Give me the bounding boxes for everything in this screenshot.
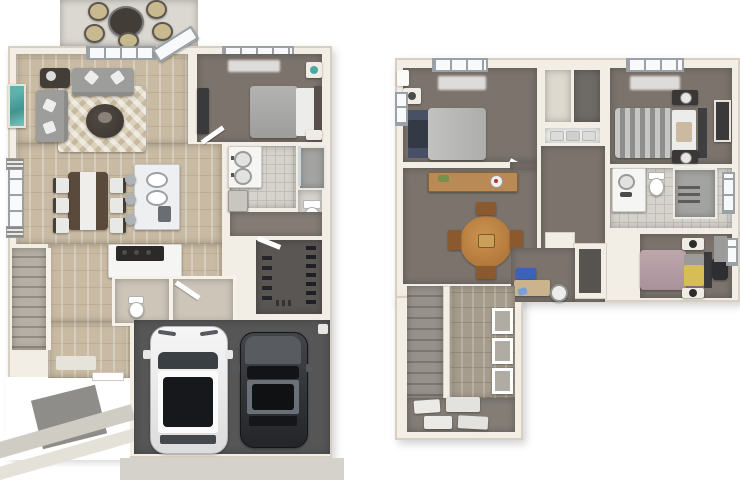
- lamp: [408, 92, 416, 100]
- suv-mirror: [143, 350, 151, 359]
- bed-duvet: [250, 86, 298, 138]
- lamp: [689, 240, 697, 248]
- suv-windshield: [158, 352, 218, 369]
- window-light: [228, 60, 280, 72]
- shoe-shelf-left: [262, 256, 272, 306]
- towel-stack: [582, 131, 596, 141]
- second-floor-plan: [370, 0, 740, 480]
- suv-mirror: [225, 350, 233, 359]
- sedan-sunroof: [252, 384, 294, 410]
- headboard: [704, 252, 712, 288]
- sedan-windshield: [247, 366, 299, 379]
- left-wall-window: [395, 92, 408, 126]
- blue-bin: [516, 268, 536, 279]
- towel-stack: [566, 131, 580, 141]
- patio-chair: [88, 2, 109, 21]
- table-chair: [510, 230, 523, 250]
- master-window: [626, 58, 684, 72]
- master-accent-pillow: [676, 122, 692, 142]
- burner: [122, 250, 127, 255]
- bedroom3-window: [726, 238, 738, 266]
- hall-closet-dark: [574, 70, 600, 122]
- island-sink: [146, 172, 168, 188]
- bowl-fruit: [494, 179, 498, 183]
- closet-items: [276, 300, 294, 306]
- dresser: [197, 88, 209, 134]
- stair-railing-wall: [443, 286, 450, 400]
- sofa-top: [72, 68, 134, 96]
- island-stool: [125, 214, 136, 225]
- mauve-bed: [640, 250, 686, 290]
- dining-chair: [110, 178, 126, 193]
- teal-lamp: [310, 66, 318, 74]
- island-stool: [125, 174, 136, 185]
- table-chair: [448, 230, 461, 250]
- floor-mat: [458, 415, 489, 430]
- floor-mat: [414, 399, 441, 414]
- shower-glass: [298, 146, 301, 186]
- island-stool: [125, 194, 136, 205]
- front-door: [92, 372, 124, 381]
- driveway: [120, 458, 344, 480]
- corner-table-decor: [46, 71, 56, 81]
- shoe-shelf-right: [306, 246, 316, 308]
- faucet: [231, 173, 234, 177]
- floor-mat: [424, 416, 452, 429]
- dining-chair: [53, 198, 69, 213]
- patio-chair: [84, 24, 105, 43]
- sofa-left: [36, 90, 68, 142]
- lamp: [680, 152, 692, 164]
- gallery-frame: [492, 338, 513, 364]
- toilet-bowl: [649, 178, 664, 196]
- headboard: [698, 108, 707, 158]
- bath-cabinet: [228, 190, 248, 212]
- living-window: [86, 46, 156, 60]
- bed-pillows: [296, 88, 316, 136]
- bath-hall: [230, 212, 322, 236]
- vanity-sink: [234, 168, 252, 185]
- suv-rear-window: [160, 435, 216, 444]
- island-cooktop: [158, 206, 171, 222]
- garage-opener-box: [318, 324, 328, 334]
- window-light: [630, 76, 680, 90]
- table-runner: [80, 172, 96, 230]
- patio-chair: [146, 0, 167, 19]
- sedan-rear-window: [249, 416, 297, 426]
- wall-art-frame: [714, 100, 731, 142]
- staircase: [407, 286, 443, 398]
- lamp: [680, 92, 692, 104]
- side-window: [8, 168, 24, 230]
- dining-chair: [110, 198, 126, 213]
- hall-closet: [545, 70, 571, 122]
- first-floor-plan: [0, 0, 370, 480]
- shower: [298, 146, 326, 190]
- powder-toilet: [129, 302, 144, 318]
- burner: [146, 250, 151, 255]
- gallery-frame: [492, 308, 513, 334]
- dining-chair: [110, 218, 126, 233]
- island-sink: [146, 190, 168, 206]
- storage-closet-shelves: [579, 249, 601, 293]
- wall-shelf: [397, 70, 409, 86]
- lamp: [689, 289, 697, 297]
- faucet: [231, 156, 234, 160]
- dining-chair: [53, 218, 69, 233]
- table-chair: [476, 266, 496, 279]
- table-centerpiece: [478, 234, 495, 248]
- shower-towel-rack: [678, 186, 700, 206]
- sedan-mirror: [233, 364, 240, 372]
- console-decor-green: [438, 175, 449, 182]
- bedroom2-window: [432, 58, 488, 72]
- striped-bed: [615, 108, 673, 158]
- towel-stack: [550, 131, 564, 141]
- staircase: [12, 248, 51, 350]
- gray-bed: [428, 108, 486, 160]
- wall-art-teal: [8, 84, 26, 128]
- window-valance: [6, 158, 24, 170]
- desk-chair: [550, 284, 568, 302]
- table-chair: [476, 202, 496, 215]
- window-light: [438, 76, 486, 90]
- dining-chair: [53, 178, 69, 193]
- sedan-mirror: [306, 364, 313, 372]
- sedan-hood: [245, 336, 301, 364]
- window-valance: [6, 226, 24, 238]
- vanity-items: [620, 192, 632, 197]
- vanity-sink: [234, 151, 252, 168]
- suv-sunroof: [163, 377, 213, 427]
- door-mat: [56, 356, 96, 370]
- ottoman-tray: [98, 112, 112, 123]
- bath-window: [722, 172, 735, 214]
- bed2-pillows: [408, 110, 428, 158]
- bed-bench: [306, 130, 322, 140]
- vanity-sink: [618, 174, 635, 190]
- loft-opening: [510, 162, 537, 170]
- floor-mat: [446, 397, 480, 412]
- burner: [134, 250, 139, 255]
- floor-plan-image: { "meta": { "type": "3d-floor-plan-rende…: [0, 0, 740, 480]
- gallery-frame: [492, 368, 513, 394]
- yellow-pillows: [684, 254, 704, 286]
